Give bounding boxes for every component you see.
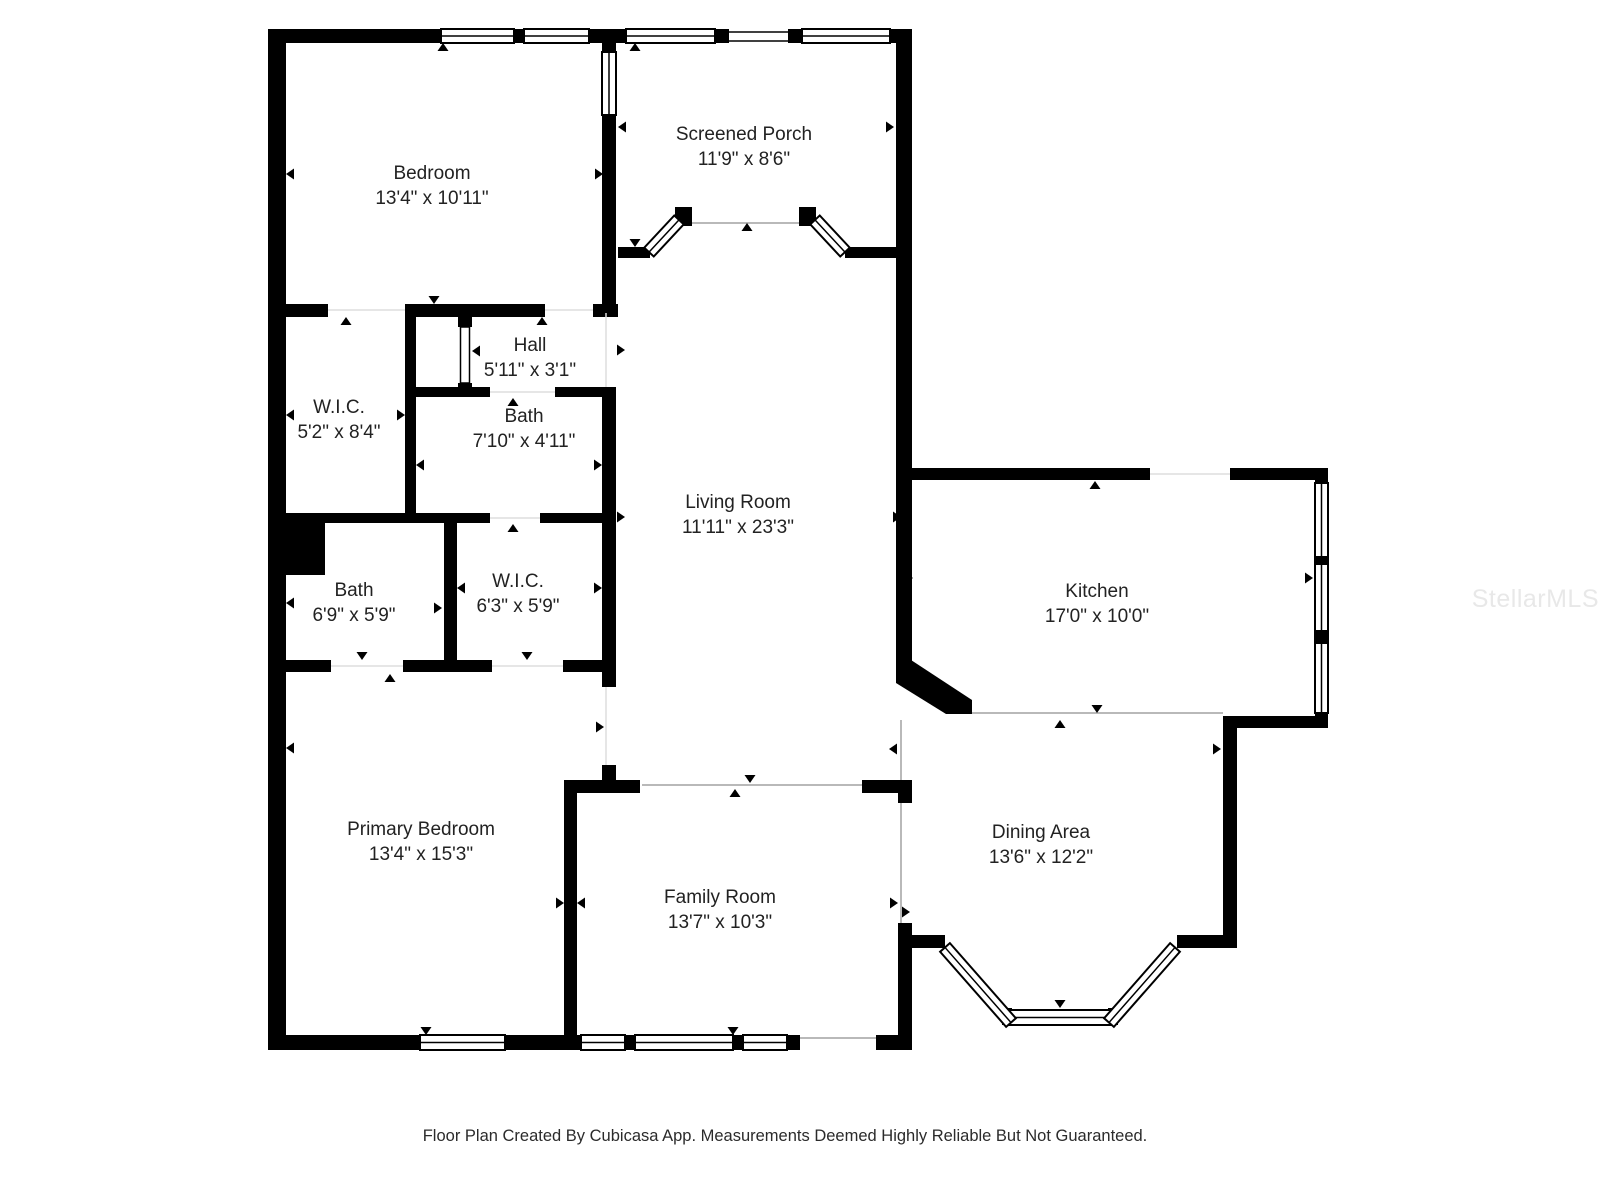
room-dimensions: 11'11" x 23'3" bbox=[682, 515, 794, 540]
room-dimensions: 5'11" x 3'1" bbox=[484, 358, 576, 383]
room-label-primary-bedroom: Primary Bedroom13'4" x 15'3" bbox=[347, 817, 495, 867]
room-label-family-room: Family Room13'7" x 10'3" bbox=[664, 885, 776, 935]
floorplan-canvas bbox=[0, 0, 1600, 1200]
room-dimensions: 5'2" x 8'4" bbox=[297, 420, 380, 445]
room-dimensions: 13'7" x 10'3" bbox=[664, 910, 776, 935]
room-label-wic-upper: W.I.C.5'2" x 8'4" bbox=[297, 395, 380, 445]
room-dimensions: 13'4" x 15'3" bbox=[347, 842, 495, 867]
room-label-screened-porch: Screened Porch11'9" x 8'6" bbox=[676, 122, 812, 172]
footer-disclaimer: Floor Plan Created By Cubicasa App. Meas… bbox=[0, 1127, 1570, 1146]
room-dimensions: 11'9" x 8'6" bbox=[676, 147, 812, 172]
room-name: Hall bbox=[484, 333, 576, 358]
room-dimensions: 6'3" x 5'9" bbox=[476, 594, 559, 619]
room-dimensions: 13'4" x 10'11" bbox=[375, 186, 488, 211]
room-dimensions: 6'9" x 5'9" bbox=[312, 603, 395, 628]
room-name: Kitchen bbox=[1045, 579, 1149, 604]
room-label-wic-lower: W.I.C.6'3" x 5'9" bbox=[476, 569, 559, 619]
room-label-living-room: Living Room11'11" x 23'3" bbox=[682, 490, 794, 540]
room-name: W.I.C. bbox=[476, 569, 559, 594]
room-name: Bedroom bbox=[375, 161, 488, 186]
room-label-hall: Hall5'11" x 3'1" bbox=[484, 333, 576, 383]
stellar-mls-watermark: StellarMLS bbox=[1472, 585, 1599, 614]
room-dimensions: 13'6" x 12'2" bbox=[989, 845, 1093, 870]
room-name: Living Room bbox=[682, 490, 794, 515]
room-name: Bath bbox=[473, 404, 576, 429]
room-label-bedroom: Bedroom13'4" x 10'11" bbox=[375, 161, 488, 211]
room-name: Bath bbox=[312, 578, 395, 603]
room-label-dining-area: Dining Area13'6" x 12'2" bbox=[989, 820, 1093, 870]
floorplan-page: Bedroom13'4" x 10'11"Screened Porch11'9"… bbox=[0, 0, 1600, 1200]
room-name: Screened Porch bbox=[676, 122, 812, 147]
room-name: Family Room bbox=[664, 885, 776, 910]
room-label-bath-lower: Bath6'9" x 5'9" bbox=[312, 578, 395, 628]
room-name: Dining Area bbox=[989, 820, 1093, 845]
room-label-kitchen: Kitchen17'0" x 10'0" bbox=[1045, 579, 1149, 629]
room-dimensions: 17'0" x 10'0" bbox=[1045, 604, 1149, 629]
room-dimensions: 7'10" x 4'11" bbox=[473, 429, 576, 454]
room-name: W.I.C. bbox=[297, 395, 380, 420]
room-label-bath-upper: Bath7'10" x 4'11" bbox=[473, 404, 576, 454]
room-name: Primary Bedroom bbox=[347, 817, 495, 842]
